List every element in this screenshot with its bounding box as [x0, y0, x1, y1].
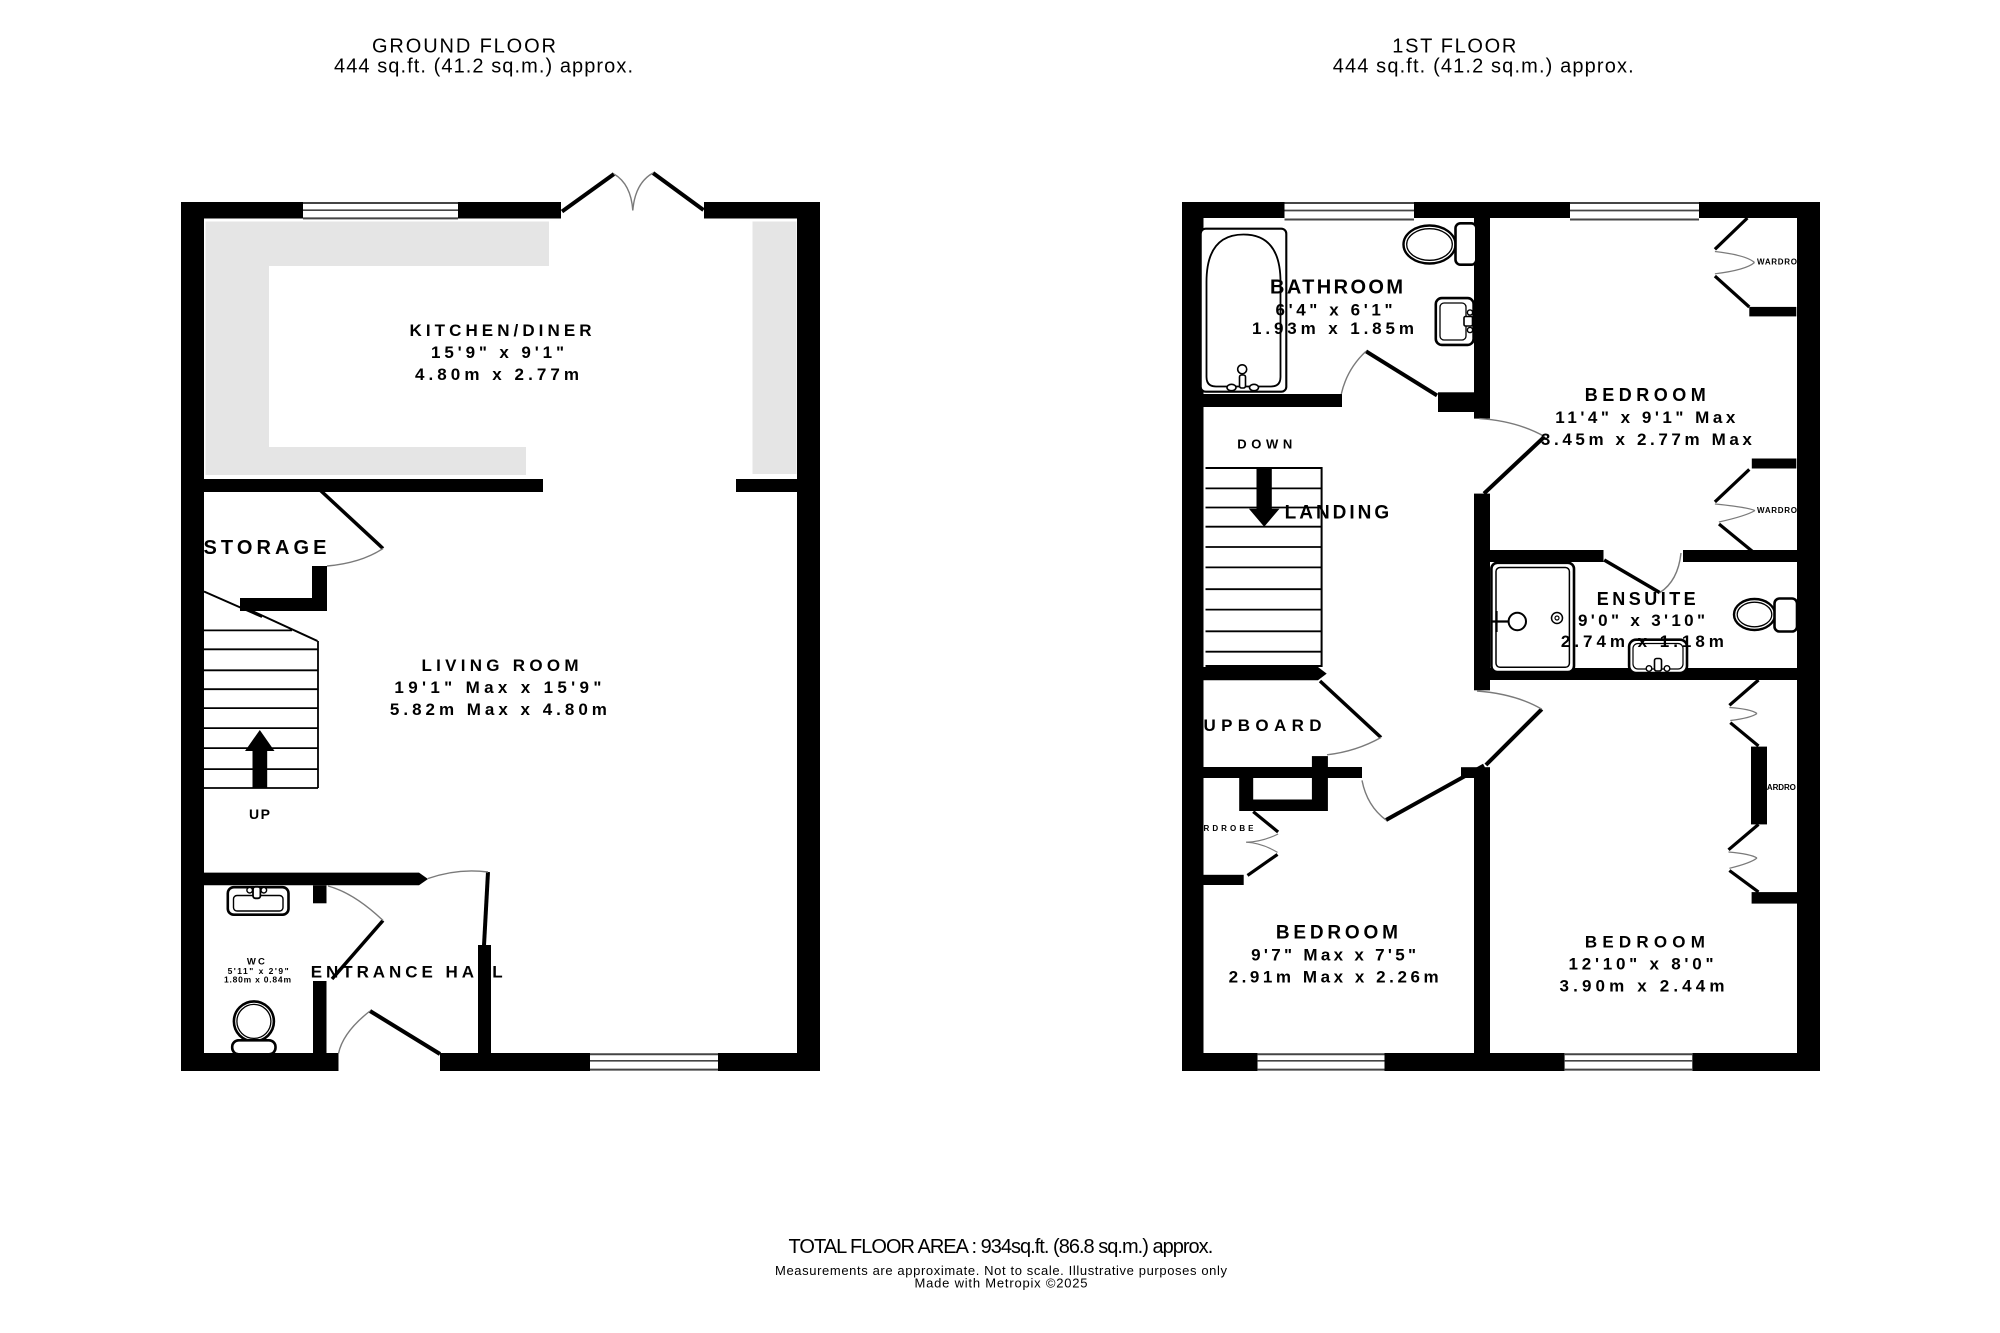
svg-text:ARDRO: ARDRO	[1767, 783, 1796, 792]
svg-text:19'1" Max x 15'9": 19'1" Max x 15'9"	[394, 678, 601, 697]
svg-text:9'7" Max x 7'5": 9'7" Max x 7'5"	[1251, 946, 1416, 965]
svg-text:3.90m x 2.44m: 3.90m x 2.44m	[1560, 977, 1725, 996]
svg-text:444 sq.ft. (41.2 sq.m.) approx: 444 sq.ft. (41.2 sq.m.) approx.	[334, 56, 633, 78]
svg-text:4.80m x 2.77m: 4.80m x 2.77m	[415, 365, 579, 384]
svg-text:WARDRO: WARDRO	[1757, 506, 1797, 515]
svg-text:WARDRO: WARDRO	[1757, 258, 1797, 267]
svg-text:TOTAL FLOOR AREA : 934sq.ft. (: TOTAL FLOOR AREA : 934sq.ft. (86.8 sq.m.…	[789, 1236, 1214, 1258]
svg-text:1.80m x 0.84m: 1.80m x 0.84m	[224, 975, 291, 985]
svg-text:LANDING: LANDING	[1285, 503, 1390, 524]
svg-text:1ST FLOOR: 1ST FLOOR	[1392, 36, 1516, 58]
svg-text:11'4" x 9'1" Max: 11'4" x 9'1" Max	[1555, 408, 1736, 427]
svg-text:444 sq.ft. (41.2 sq.m.) approx: 444 sq.ft. (41.2 sq.m.) approx.	[1333, 56, 1634, 78]
svg-text:UPBOARD: UPBOARD	[1204, 716, 1322, 735]
svg-text:KITCHEN/DINER: KITCHEN/DINER	[410, 321, 592, 340]
svg-text:STORAGE: STORAGE	[204, 537, 327, 559]
svg-text:BATHROOM: BATHROOM	[1270, 277, 1403, 299]
svg-text:12'10" x 8'0": 12'10" x 8'0"	[1569, 955, 1714, 974]
svg-text:2.74m x 1.18m: 2.74m x 1.18m	[1561, 632, 1724, 651]
svg-text:1.93m x 1.85m: 1.93m x 1.85m	[1252, 319, 1414, 338]
svg-text:Made with Metropix ©2025: Made with Metropix ©2025	[915, 1276, 1088, 1291]
svg-text:GROUND FLOOR: GROUND FLOOR	[372, 36, 556, 58]
